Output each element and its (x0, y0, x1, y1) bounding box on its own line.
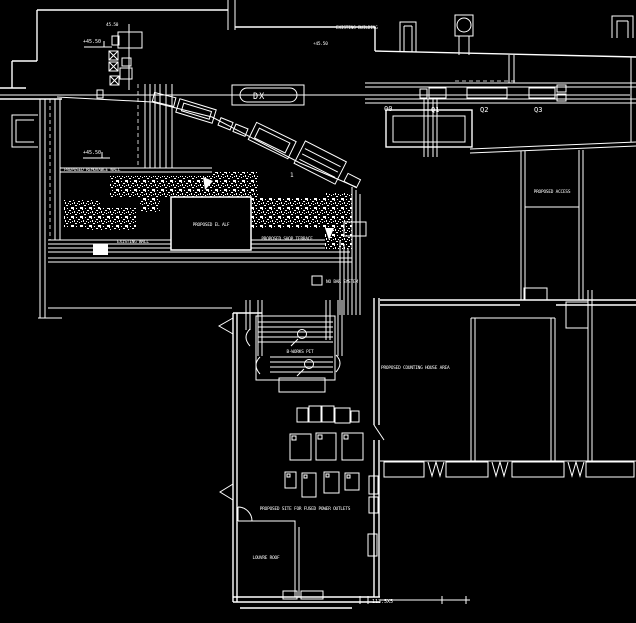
diag-magnet-7 (344, 173, 361, 187)
existing-wall-label: EXISTING WALL (117, 239, 149, 245)
left-alcove-room (12, 115, 38, 147)
level-top-label: +45.50 (83, 39, 101, 45)
column-with-circle (455, 15, 473, 55)
diag-magnet-5 (248, 122, 296, 158)
level-wall-label: +45.50 (313, 41, 328, 47)
footing-band (384, 462, 634, 477)
outer-walls (0, 0, 636, 142)
existing-building-label: EXISTING BUILDING (336, 25, 378, 31)
label-chip (93, 244, 108, 255)
no-bar-label: NO BAR SYSTEM (326, 279, 358, 285)
door-chevrons (219, 318, 233, 500)
dx-label: DX (253, 92, 265, 102)
counting-house-label: PROPOSED COUNTING HOUSE AREA (381, 365, 450, 371)
annex-label: PROPOSED EL ALF (193, 222, 230, 228)
dim-top-label: 45.50 (106, 22, 119, 28)
bottom-dim-label: 113.5X5 (372, 599, 393, 605)
bench-row (297, 406, 359, 423)
wall-cabinets (283, 476, 378, 599)
q1-magnet (429, 88, 446, 98)
magnet-symbol-2 (109, 62, 118, 71)
q3-label: Q3 (534, 106, 542, 114)
diag-magnet-6 (294, 141, 346, 184)
magnet-symbol-3 (110, 76, 119, 85)
equipment-row-2 (285, 472, 359, 497)
power-outlets-label: PROPOSED SITE FOR FUSED POWER OUTLETS (260, 506, 351, 512)
annotations: +45.50 45.50 +45.50 EXISTING BUILDING +4… (83, 22, 378, 158)
louvre-roof-room: LOUVRE ROOF (238, 507, 299, 597)
item-number-label: 1 (290, 172, 294, 179)
magnet-symbol-1 (109, 51, 118, 60)
access-corridor: PROPOSED ACCESS (470, 142, 636, 300)
removable-wall-label: PROPOSED REMOVABLE WALL (64, 167, 121, 173)
counting-house-building: PROPOSED COUNTING HOUSE AREA (380, 288, 636, 477)
top-right-fixture (612, 16, 633, 38)
q0-label: 00 (384, 105, 392, 113)
pit-label: B-WORKS PIT (287, 349, 314, 355)
stair-pit: B-WORKS PIT (246, 300, 342, 392)
floor-plan: DX 00 Q1 Q2 Q3 (0, 0, 636, 623)
floor-plan-drawing: DX 00 Q1 Q2 Q3 (0, 0, 636, 623)
louvre-roof-label: LOUVRE ROOF (253, 555, 280, 561)
equipment-row-1 (290, 433, 363, 460)
q2-magnet (467, 88, 507, 98)
level-mid-label: +45.50 (83, 150, 101, 156)
diagonal-beamline: 1 (57, 92, 361, 187)
diag-magnet-4 (233, 124, 248, 136)
top-door-fixture (400, 22, 416, 52)
diag-magnet-2 (176, 99, 216, 123)
shop-terrace-label: PROPOSED SHOP TERRACE (261, 236, 313, 242)
beamline-valve (97, 90, 103, 98)
access-label: PROPOSED ACCESS (534, 189, 571, 195)
injector-cluster (109, 24, 142, 90)
q3-magnet (529, 88, 555, 98)
beamline-pit-box (386, 110, 472, 147)
q2-label: Q2 (480, 106, 488, 114)
hall-building: B-WORKS PIT PROPOSED SITE FOR FUSED POWE… (219, 298, 470, 608)
